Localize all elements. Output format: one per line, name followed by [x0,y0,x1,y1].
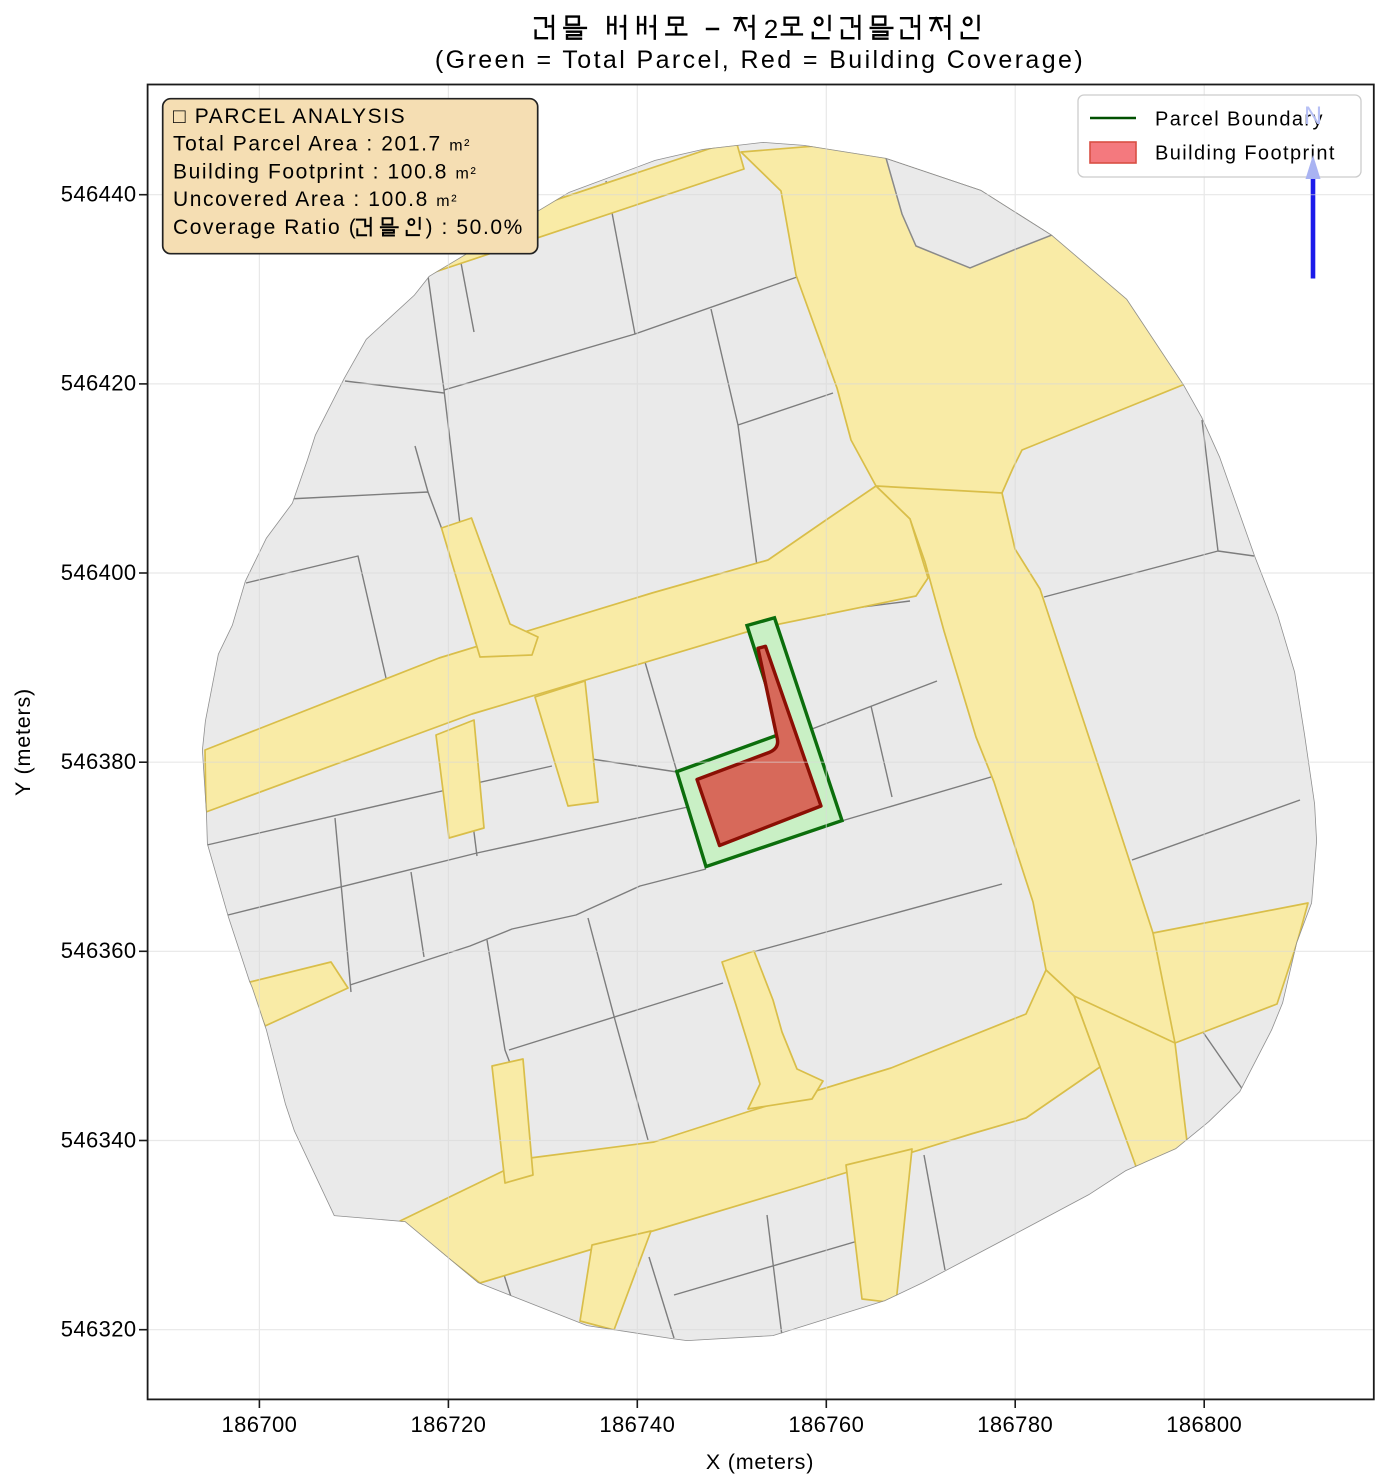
svg-text:186720: 186720 [410,1412,486,1437]
svg-text:546360: 546360 [61,938,137,963]
svg-text:186740: 186740 [599,1412,675,1437]
svg-text:546440: 546440 [61,182,137,207]
svg-text:Coverage Ratio (: Coverage Ratio ( [173,216,357,239]
svg-text:Building Footprint : 100.8 m²: Building Footprint : 100.8 m² [173,160,477,183]
svg-text:546420: 546420 [61,371,137,396]
svg-text:Uncovered Area : 100.8 m²: Uncovered Area : 100.8 m² [173,188,458,211]
svg-text:2: 2 [764,14,778,44]
svg-text:□ PARCEL ANALYSIS: □ PARCEL ANALYSIS [173,105,406,128]
svg-text:186700: 186700 [221,1412,297,1437]
svg-text:X (meters): X (meters) [706,1450,814,1474]
svg-text:546340: 546340 [61,1127,137,1152]
svg-text:546380: 546380 [61,749,137,774]
svg-text:) : 50.0%: ) : 50.0% [426,216,524,239]
svg-text:Total Parcel Area : 201.7 m²: Total Parcel Area : 201.7 m² [173,133,471,156]
svg-text:(Green = Total Parcel, Red = B: (Green = Total Parcel, Red = Building Co… [435,46,1085,74]
svg-text:N: N [1304,102,1322,130]
svg-text:Parcel Boundary: Parcel Boundary [1155,109,1324,131]
svg-text:Y (meters): Y (meters) [11,688,35,796]
svg-text:186760: 186760 [788,1412,864,1437]
svg-text:546320: 546320 [61,1317,137,1342]
svg-text:Building Footprint: Building Footprint [1155,143,1336,165]
svg-text:546400: 546400 [61,560,137,585]
svg-text:186780: 186780 [977,1412,1053,1437]
svg-text:186800: 186800 [1166,1412,1242,1437]
